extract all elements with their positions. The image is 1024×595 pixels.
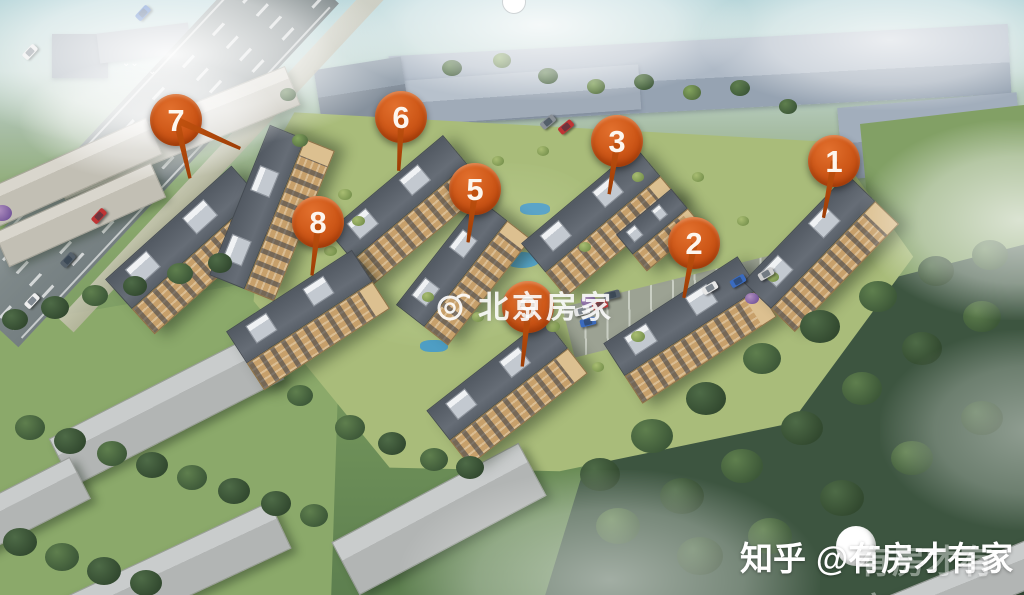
bottom-watermark: 有房才有家 知乎 @有房才有家 — [740, 532, 1013, 580]
fog — [880, 330, 1024, 530]
building-marker-3: 3 — [591, 115, 643, 167]
tree — [492, 156, 504, 166]
tree — [592, 362, 604, 372]
marker-number: 7 — [167, 105, 184, 136]
tree — [800, 310, 840, 343]
tree — [15, 415, 45, 440]
marker-number: 8 — [309, 207, 326, 238]
center-watermark-text: 北京房家 — [478, 282, 614, 327]
tree — [579, 242, 591, 252]
tree — [123, 276, 147, 296]
marker-number: 3 — [608, 126, 625, 157]
tree — [335, 415, 365, 440]
aerial-site-plan: ⌄⌄ ⌄ 76531829 北京房家 有房才有家 知乎 @有房才有家 — [0, 0, 1024, 595]
tree — [422, 292, 434, 302]
tree — [208, 253, 232, 273]
tree — [686, 382, 726, 415]
tree — [41, 296, 69, 319]
tree — [743, 343, 781, 374]
fog — [330, 0, 750, 100]
marker-number: 6 — [392, 102, 409, 133]
tree — [218, 478, 250, 504]
marker-number: 1 — [825, 146, 842, 177]
tree — [420, 448, 448, 471]
building-marker-7: 7 — [150, 94, 202, 146]
tree — [45, 543, 79, 571]
tree — [632, 172, 644, 182]
building-marker-8: 8 — [292, 196, 344, 248]
building-marker-2: 2 — [668, 217, 720, 269]
tree — [378, 432, 406, 455]
tree — [87, 557, 121, 585]
tree — [842, 372, 882, 405]
tree — [261, 491, 291, 516]
tree — [537, 146, 549, 156]
tree — [97, 441, 127, 466]
tree — [82, 285, 108, 306]
tree — [130, 570, 162, 595]
tree — [136, 452, 168, 478]
center-watermark: 北京房家 — [436, 282, 614, 327]
fog — [700, 0, 1024, 110]
tree — [737, 216, 749, 226]
building-marker-5: 5 — [449, 163, 501, 215]
bottom-watermark-ghost: 有房才有家 — [858, 535, 1013, 595]
building-marker-1: 1 — [808, 135, 860, 187]
tree — [324, 246, 337, 257]
tree — [177, 465, 207, 490]
pool — [520, 203, 550, 215]
tree — [352, 216, 365, 227]
building-marker-6: 6 — [375, 91, 427, 143]
tree — [3, 528, 37, 556]
tree — [820, 480, 864, 516]
weibo-eye-icon — [436, 289, 470, 321]
tree — [54, 428, 86, 454]
marker-number: 2 — [685, 228, 702, 259]
tree — [692, 172, 704, 182]
tree — [300, 504, 328, 527]
bottom-watermark-platform: 知乎 — [740, 532, 806, 580]
fog — [860, 120, 1024, 320]
marker-number: 5 — [466, 174, 483, 205]
